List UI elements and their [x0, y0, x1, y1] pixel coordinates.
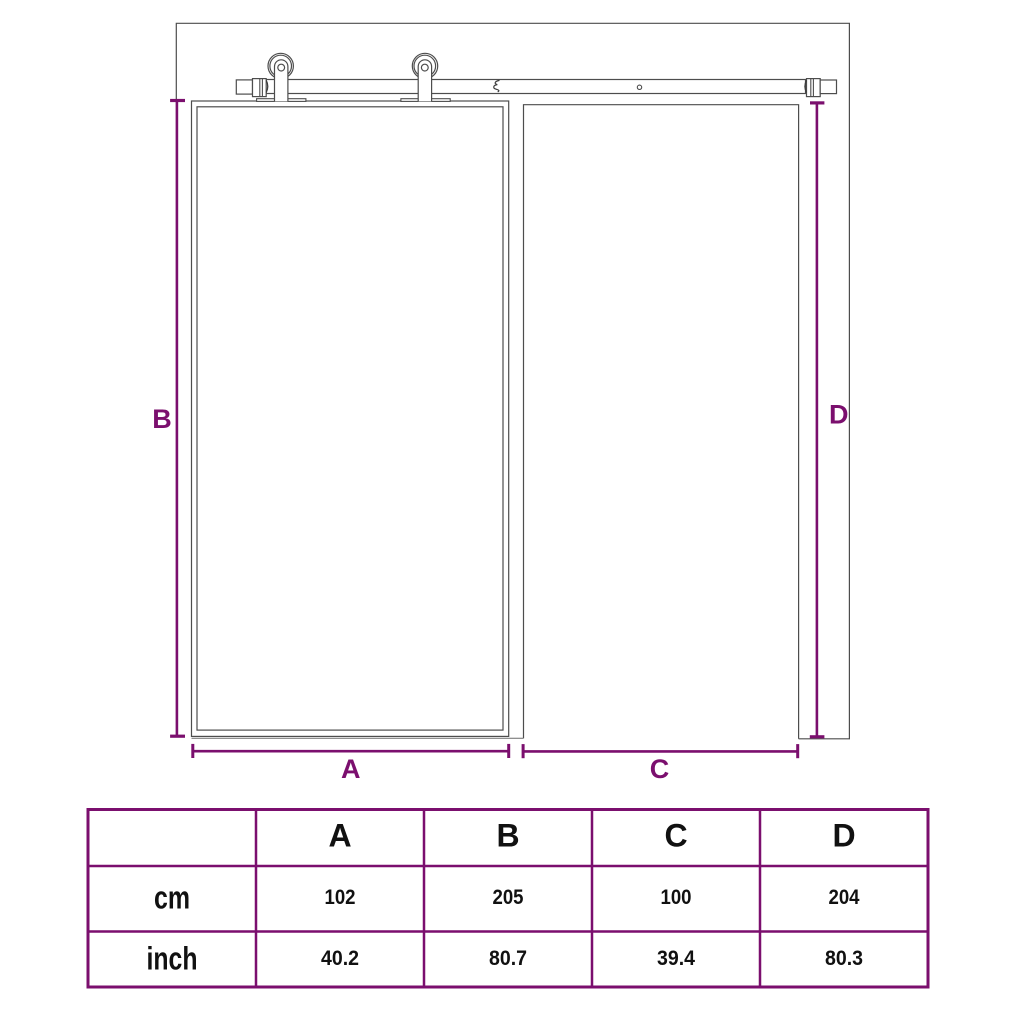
svg-text:80.3: 80.3 [825, 947, 863, 970]
svg-text:80.7: 80.7 [489, 947, 527, 970]
svg-text:B: B [496, 818, 519, 854]
svg-text:205: 205 [493, 886, 524, 909]
svg-text:A: A [328, 818, 351, 854]
svg-text:B: B [152, 404, 172, 434]
svg-text:39.4: 39.4 [657, 947, 695, 970]
svg-text:D: D [832, 818, 855, 854]
svg-text:D: D [829, 400, 849, 430]
svg-text:204: 204 [829, 886, 860, 909]
svg-text:40.2: 40.2 [321, 947, 359, 970]
svg-text:A: A [341, 754, 361, 784]
svg-text:C: C [664, 818, 687, 854]
svg-text:cm: cm [154, 880, 190, 916]
svg-text:C: C [650, 754, 670, 784]
svg-text:100: 100 [661, 886, 692, 909]
svg-text:inch: inch [147, 941, 198, 977]
svg-text:102: 102 [325, 886, 356, 909]
